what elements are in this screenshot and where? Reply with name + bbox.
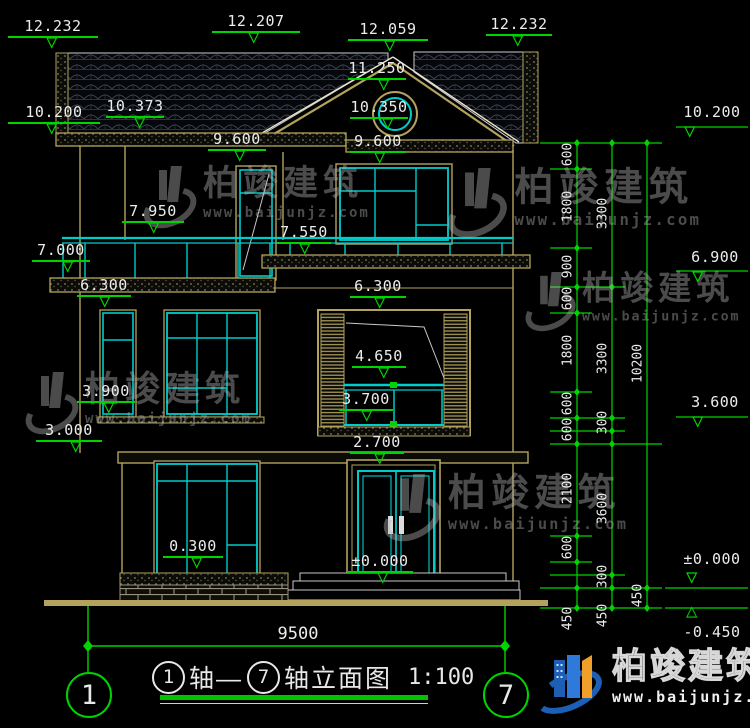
- elevation-marker: 12.232 ▽: [486, 16, 552, 36]
- dim-segment: 600: [562, 410, 575, 450]
- dim-segment: 450: [562, 599, 575, 639]
- dim-segment: 1800: [562, 187, 575, 227]
- elevation-triangle-icon: ▽: [148, 218, 160, 237]
- title-underline-thin: [160, 703, 428, 704]
- elevation-marker: △ -0.450: [676, 606, 748, 642]
- elevation-marker: 12.059 ▽: [348, 21, 428, 41]
- dim-segment: 3600: [597, 489, 610, 529]
- elevation-marker: 0.300 ▽: [163, 538, 223, 558]
- ground-line: [44, 600, 548, 606]
- elevation-marker: 12.207 ▽: [212, 13, 300, 33]
- elevation-triangle-icon: ▽: [378, 363, 390, 382]
- elevation-marker: ±0.000 ▽: [676, 551, 748, 569]
- elevation-triangle-icon: ▽: [46, 33, 58, 52]
- title-axis-to: 7: [258, 666, 269, 688]
- elevation-marker: 3.000 ▽: [36, 422, 102, 442]
- dim-segment: 600: [562, 279, 575, 319]
- elevation-drawing: 柏竣建筑 www.baijunjz.com 柏竣建筑 www.baijunjz.…: [0, 0, 750, 728]
- overall-width-dim: 9500: [268, 624, 328, 644]
- watermark-brand: 柏竣建筑: [582, 272, 741, 307]
- elevation-marker: 7.950 ▽: [122, 203, 184, 223]
- watermark: 柏竣建筑 www.baijunjz.com: [524, 272, 740, 331]
- watermark-brand: 柏竣建筑: [203, 166, 370, 203]
- title-block: 1 轴— 7 轴立面图 1:100: [152, 659, 452, 695]
- elevation-triangle-icon: ▽: [299, 239, 311, 258]
- elevation-triangle-icon: ▽: [377, 568, 389, 587]
- elevation-marker: 4.650 ▽: [352, 348, 406, 368]
- elevation-triangle-icon: ▽: [692, 412, 704, 431]
- window-1f-left: [154, 461, 260, 577]
- title-scale: 1:100: [408, 665, 474, 690]
- elevation-marker: 6.300 ▽: [350, 278, 406, 298]
- elevation-triangle-icon: ▽: [374, 293, 386, 312]
- elevation-triangle-icon: ▽: [234, 146, 246, 165]
- elevation-triangle-icon: ▽: [374, 449, 386, 468]
- elevation-marker: 9.600 ▽: [350, 133, 406, 153]
- elevation-triangle-icon: ▽: [512, 31, 524, 50]
- elevation-marker: ±0.000 ▽: [347, 553, 413, 573]
- dim-segment: 600: [562, 135, 575, 175]
- elevation-triangle-icon: ▽: [382, 114, 394, 133]
- dim-segment: 600: [562, 528, 575, 568]
- elevation-marker: 10.200 ▽: [8, 104, 100, 124]
- axis-bubble-7: 7: [483, 672, 529, 718]
- elevation-value: -0.450: [676, 624, 748, 642]
- dim-segment: 450: [597, 596, 610, 636]
- watermark-url: www.baijunjz.com: [582, 309, 741, 324]
- elevation-triangle-icon: ▽: [384, 36, 396, 55]
- elevation-value: 10.200: [676, 104, 748, 122]
- elevation-triangle-icon: ▽: [62, 257, 74, 276]
- elevation-triangle-icon: ▽: [374, 148, 386, 167]
- elevation-marker: 11.250 ▽: [348, 60, 406, 80]
- elevation-triangle-icon: ▽: [99, 292, 111, 311]
- elevation-marker: 7.550 ▽: [277, 224, 331, 244]
- elevation-triangle-icon: ▽: [684, 122, 696, 141]
- elevation-triangle-icon: ▽: [103, 398, 115, 417]
- axis-number: 1: [81, 680, 97, 711]
- brand-logo-icon: [532, 648, 608, 718]
- elevation-value: 7.000: [32, 242, 90, 262]
- dim-segment: 2100: [562, 469, 575, 509]
- elevation-marker: 9.600 ▽: [208, 131, 266, 151]
- elevation-marker: 6.300 ▽: [77, 277, 131, 297]
- dim-segment: 1800: [562, 331, 575, 371]
- elevation-marker: 10.350 ▽: [350, 99, 408, 119]
- elevation-triangle-icon: ▽: [378, 75, 390, 94]
- roof-left: [56, 53, 388, 133]
- elevation-marker: 3.900 ▽: [77, 383, 135, 403]
- elevation-triangle-icon: ▽: [692, 267, 704, 286]
- title-axis-circle: 1: [152, 661, 185, 694]
- watermark: 柏竣建筑 www.baijunjz.com: [382, 474, 628, 541]
- elevation-marker: 2.700 ▽: [350, 434, 404, 454]
- dim-segment: 3300: [597, 339, 610, 379]
- title-axis-from: 1: [163, 666, 174, 688]
- elevation-triangle-icon: ▽: [248, 28, 260, 47]
- elevation-triangle-icon: ▽: [70, 437, 82, 456]
- axis-bubble-1: 1: [66, 672, 112, 718]
- dim-segment: 450: [632, 576, 645, 616]
- elevation-marker: 3.700 ▽: [339, 391, 393, 411]
- elevation-value: 3.600: [682, 394, 748, 412]
- roof-right: [414, 52, 538, 143]
- elevation-triangle-icon: △: [686, 602, 698, 621]
- elevation-marker: 10.200 ▽: [676, 104, 748, 122]
- brand-logo: 柏竣建筑 www.baijunjz.com: [532, 648, 750, 718]
- elevation-marker: 3.600 ▽: [682, 394, 748, 412]
- elevation-value: 10.350: [350, 99, 408, 119]
- brand-name: 柏竣建筑: [612, 648, 750, 687]
- elevation-triangle-icon: ▽: [134, 113, 146, 132]
- title-underline: [160, 695, 428, 700]
- elevation-marker: 12.232 ▽: [8, 18, 98, 38]
- title-axis-circle: 7: [247, 661, 280, 694]
- elevation-value: 11.250: [348, 60, 406, 80]
- dim-segment: 3300: [597, 194, 610, 234]
- elevation-value: 3.000: [36, 422, 102, 442]
- dim-segment: 10200: [632, 344, 645, 384]
- recessed-balcony: [318, 310, 470, 436]
- dim-segment: 300: [597, 557, 610, 597]
- elevation-marker: 7.000 ▽: [32, 242, 90, 262]
- watermark-logo-icon: [446, 168, 506, 237]
- elevation-triangle-icon: ▽: [686, 568, 698, 587]
- watermark-logo-icon: [382, 474, 440, 541]
- axis-number: 7: [498, 680, 514, 711]
- elevation-marker: 10.373 ▽: [106, 98, 164, 118]
- title-joiner: 轴—: [189, 659, 243, 695]
- brand-url: www.baijunjz.com: [612, 688, 750, 706]
- elevation-triangle-icon: ▽: [46, 119, 58, 138]
- elevation-triangle-icon: ▽: [191, 553, 203, 572]
- watermark-url: www.baijunjz.com: [203, 205, 370, 221]
- elevation-triangle-icon: ▽: [361, 406, 373, 425]
- elevation-marker: 6.900 ▽: [682, 249, 748, 267]
- elevation-value: 6.900: [682, 249, 748, 267]
- porch-steps: [287, 573, 520, 600]
- dim-segment: 300: [597, 403, 610, 443]
- title-name: 轴立面图: [284, 659, 392, 695]
